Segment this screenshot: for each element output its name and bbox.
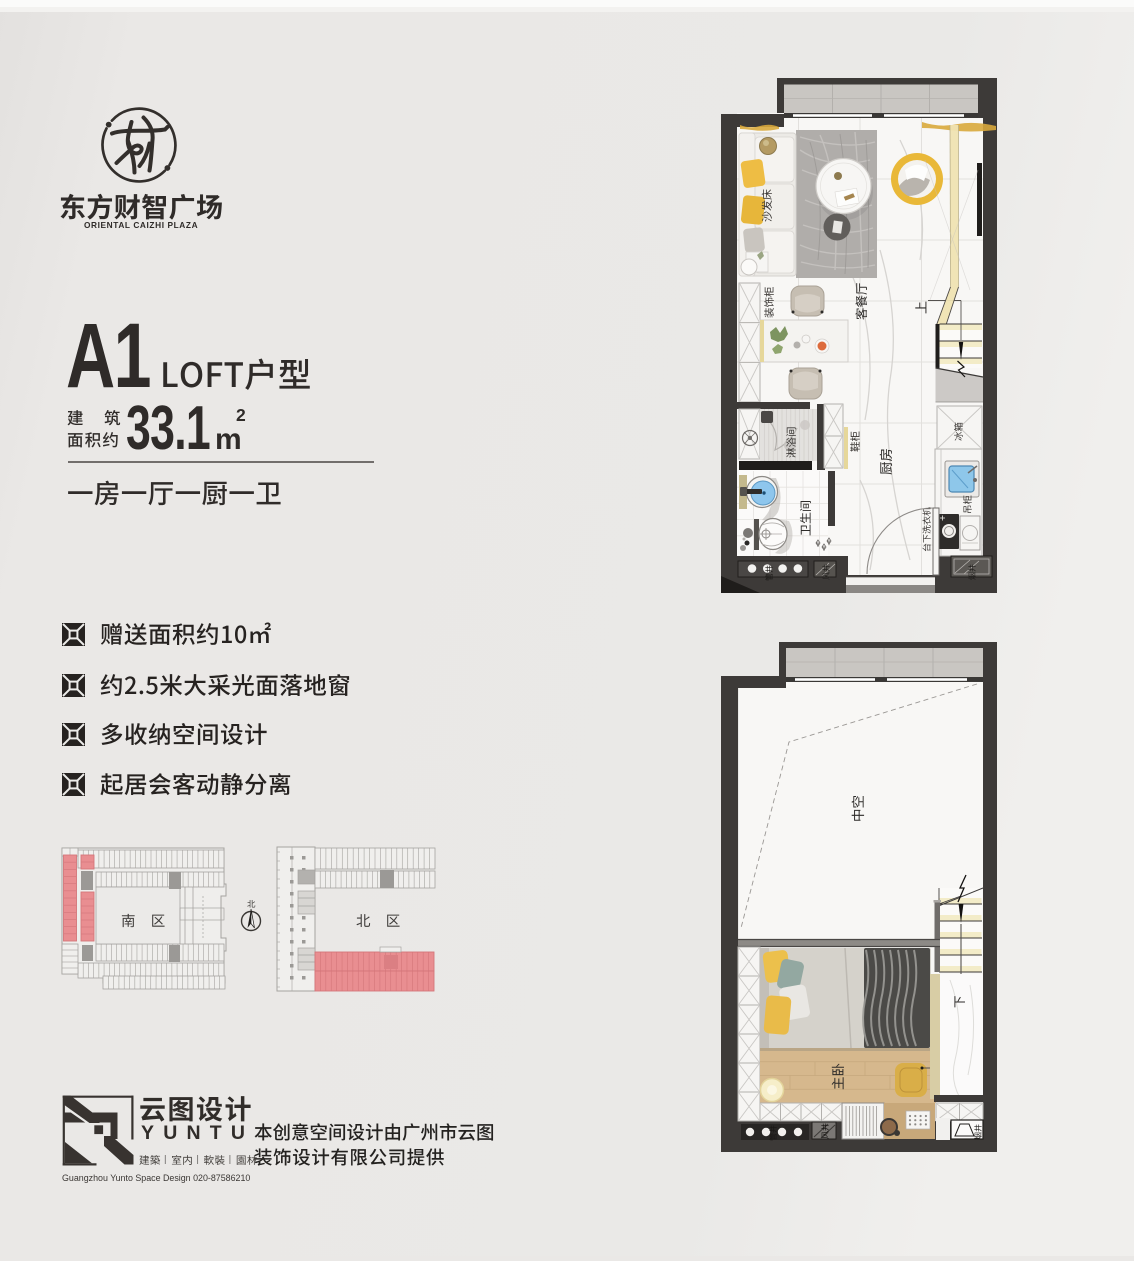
svg-text:A1: A1: [66, 305, 150, 407]
svg-text:33.1: 33.1: [126, 394, 210, 463]
svg-text:ORIENTAL CAIZHI PLAZA: ORIENTAL CAIZHI PLAZA: [84, 220, 198, 230]
svg-text:YUNTU: YUNTU: [141, 1122, 254, 1144]
svg-text:Guangzhou Yunto Space Design 0: Guangzhou Yunto Space Design 020-8758621…: [62, 1173, 250, 1183]
svg-text:m: m: [215, 423, 242, 456]
svg-text:2: 2: [236, 405, 246, 425]
